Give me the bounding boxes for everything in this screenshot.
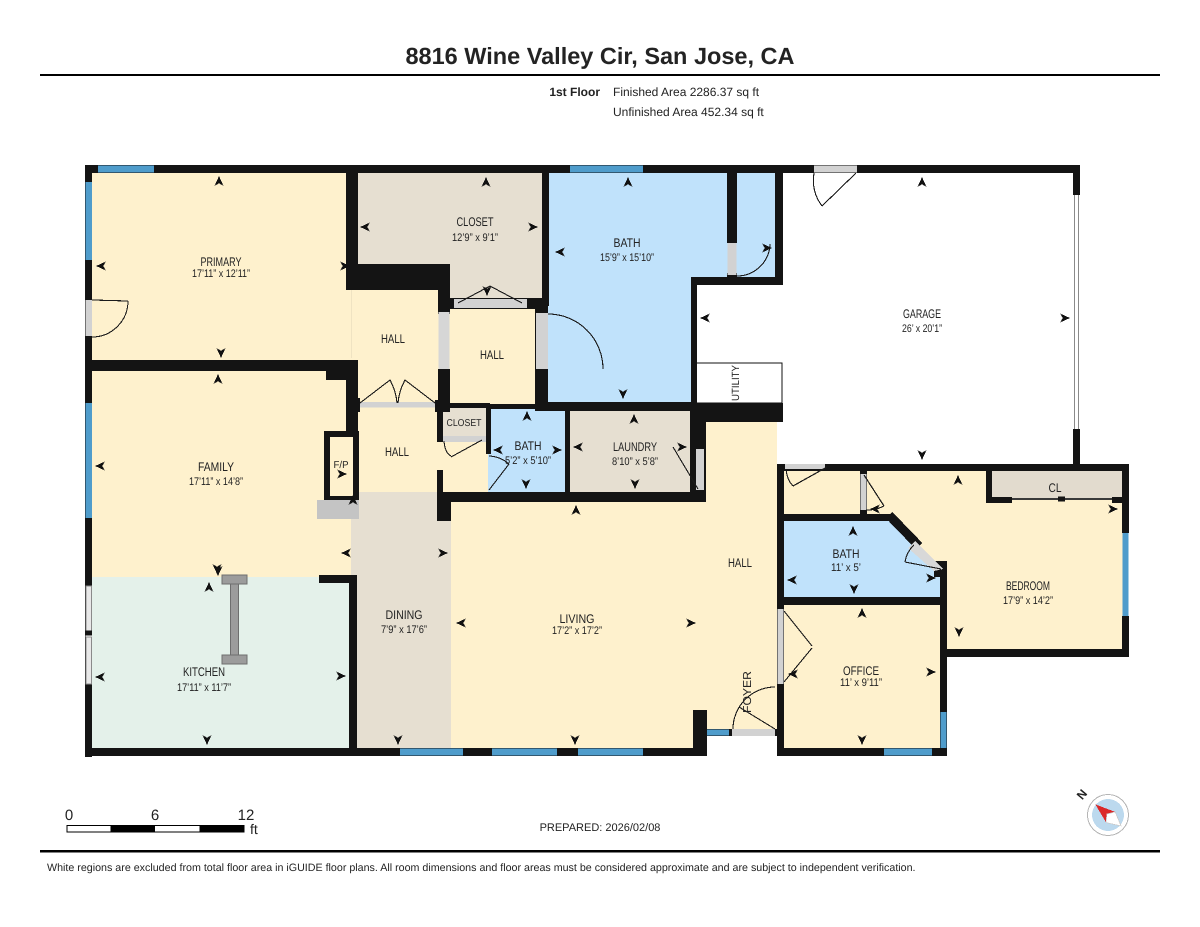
svg-text:8’10” x 5’8”: 8’10” x 5’8” [612, 456, 658, 468]
svg-text:5’2” x 5’10”: 5’2” x 5’10” [505, 455, 551, 467]
svg-text:HALL: HALL [381, 332, 405, 346]
svg-text:17’11” x 14’8”: 17’11” x 14’8” [189, 476, 243, 488]
svg-text:HALL: HALL [728, 556, 752, 570]
svg-text:12’9” x 9’1”: 12’9” x 9’1” [452, 232, 498, 244]
svg-text:PREPARED: 2026/02/08: PREPARED: 2026/02/08 [540, 822, 661, 834]
svg-text:26’ x 20’1”: 26’ x 20’1” [902, 323, 942, 335]
svg-text:15’9” x 15’10”: 15’9” x 15’10” [600, 252, 654, 264]
svg-text:F/P: F/P [334, 460, 349, 471]
svg-text:BEDROOM: BEDROOM [1006, 579, 1050, 593]
svg-text:6: 6 [151, 807, 159, 824]
svg-text:GARAGE: GARAGE [903, 307, 941, 321]
svg-text:FAMILY: FAMILY [198, 460, 235, 474]
svg-text:Unfinished Area 452.34 sq ft: Unfinished Area 452.34 sq ft [613, 105, 764, 119]
svg-text:PRIMARY: PRIMARY [201, 255, 242, 269]
svg-text:FOYER: FOYER [742, 671, 754, 713]
svg-text:17’2” x 17’2”: 17’2” x 17’2” [552, 625, 602, 637]
svg-text:BATH: BATH [833, 547, 860, 561]
svg-text:Finished Area 2286.37 sq ft: Finished Area 2286.37 sq ft [613, 85, 760, 99]
svg-text:11’ x 5’: 11’ x 5’ [831, 562, 861, 574]
svg-text:17’11” x 11’7”: 17’11” x 11’7” [177, 682, 231, 694]
svg-text:8816 Wine Valley Cir, San Jose: 8816 Wine Valley Cir, San Jose, CA [405, 43, 794, 69]
svg-text:1st Floor: 1st Floor [549, 85, 600, 99]
svg-text:LAUNDRY: LAUNDRY [613, 440, 657, 454]
svg-text:KITCHEN: KITCHEN [183, 665, 225, 679]
svg-text:11’ x 9’11”: 11’ x 9’11” [840, 677, 882, 689]
svg-text:DINING: DINING [386, 608, 423, 622]
svg-text:17’9” x 14’2”: 17’9” x 14’2” [1003, 595, 1053, 607]
svg-text:BATH: BATH [515, 439, 542, 453]
svg-text:CL: CL [1049, 481, 1062, 495]
svg-text:White regions are excluded fro: White regions are excluded from total fl… [47, 862, 916, 874]
svg-text:HALL: HALL [480, 348, 504, 362]
svg-text:CLOSET: CLOSET [457, 215, 494, 229]
svg-text:ft: ft [250, 821, 258, 837]
svg-text:HALL: HALL [385, 445, 409, 459]
svg-text:OFFICE: OFFICE [843, 664, 879, 678]
svg-text:7’9” x 17’6”: 7’9” x 17’6” [381, 624, 427, 636]
svg-text:LIVING: LIVING [560, 612, 595, 626]
svg-text:CLOSET: CLOSET [447, 418, 482, 429]
svg-text:0: 0 [65, 807, 73, 824]
svg-text:BATH: BATH [614, 236, 641, 250]
svg-text:UTILITY: UTILITY [730, 365, 742, 401]
svg-text:17’11” x 12’11”: 17’11” x 12’11” [192, 268, 250, 280]
